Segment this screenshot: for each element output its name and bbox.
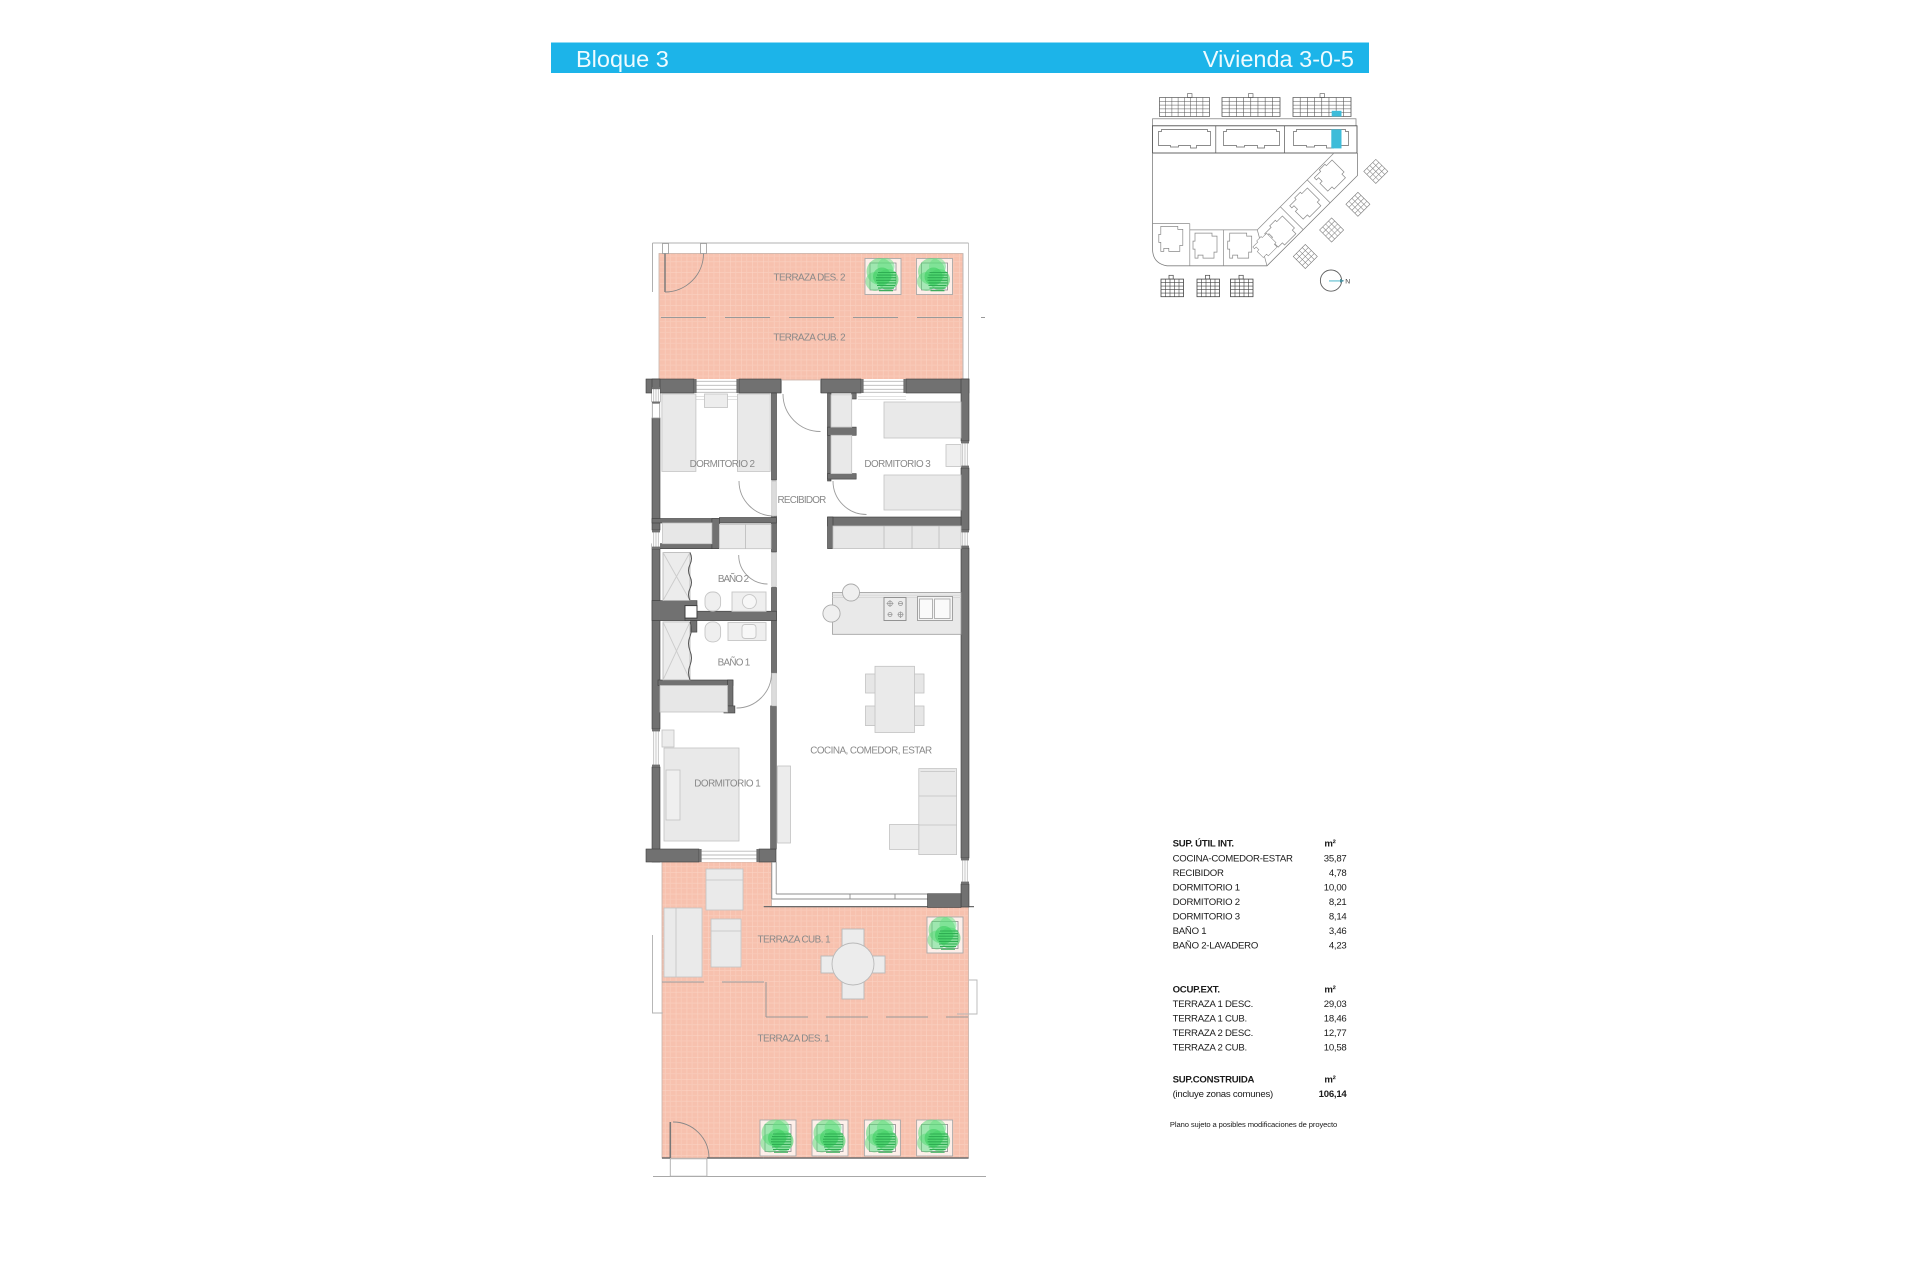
svg-text:COCINA, COMEDOR, ESTAR: COCINA, COMEDOR, ESTAR (810, 746, 932, 757)
svg-text:Bloque 3: Bloque 3 (576, 46, 669, 72)
svg-text:m²: m² (1324, 1075, 1335, 1086)
svg-text:4,23: 4,23 (1329, 941, 1347, 952)
svg-text:DORMITORIO 1: DORMITORIO 1 (694, 779, 761, 790)
svg-text:TERRAZA CUB. 2: TERRAZA CUB. 2 (773, 333, 845, 344)
svg-text:m²: m² (1324, 985, 1335, 996)
svg-text:8,14: 8,14 (1329, 912, 1348, 923)
svg-text:35,87: 35,87 (1324, 854, 1347, 865)
svg-text:18,46: 18,46 (1324, 1014, 1347, 1025)
svg-text:BAÑO 2-LAVADERO: BAÑO 2-LAVADERO (1173, 941, 1258, 952)
svg-text:Vivienda 3-0-5: Vivienda 3-0-5 (1203, 46, 1354, 72)
svg-text:TERRAZA CUB. 1: TERRAZA CUB. 1 (758, 935, 832, 946)
svg-text:COCINA-COMEDOR-ESTAR: COCINA-COMEDOR-ESTAR (1173, 854, 1293, 865)
svg-text:TERRAZA 2 CUB.: TERRAZA 2 CUB. (1173, 1043, 1247, 1054)
svg-text:106,14: 106,14 (1319, 1089, 1348, 1100)
svg-text:DORMITORIO 3: DORMITORIO 3 (864, 459, 931, 470)
svg-text:RECIBIDOR: RECIBIDOR (778, 495, 827, 506)
svg-text:TERRAZA 1 CUB.: TERRAZA 1 CUB. (1173, 1014, 1247, 1025)
svg-text:TERRAZA DES. 2: TERRAZA DES. 2 (774, 273, 846, 284)
svg-text:DORMITORIO 2: DORMITORIO 2 (1173, 897, 1240, 908)
svg-text:RECIBIDOR: RECIBIDOR (1173, 868, 1224, 879)
svg-text:BAÑO 1: BAÑO 1 (1173, 926, 1207, 937)
svg-text:(incluye zonas comunes): (incluye zonas comunes) (1173, 1089, 1273, 1100)
svg-text:OCUP.EXT.: OCUP.EXT. (1173, 985, 1220, 996)
svg-text:DORMITORIO 1: DORMITORIO 1 (1173, 883, 1240, 894)
svg-text:3,46: 3,46 (1329, 926, 1347, 937)
svg-text:SUP.CONSTRUIDA: SUP.CONSTRUIDA (1173, 1075, 1255, 1086)
svg-text:10,00: 10,00 (1324, 883, 1347, 894)
svg-text:8,21: 8,21 (1329, 897, 1347, 908)
svg-text:29,03: 29,03 (1324, 999, 1347, 1010)
svg-text:Plano sujeto a posibles modifi: Plano sujeto a posibles modificaciones d… (1170, 1120, 1337, 1129)
svg-text:N: N (1345, 278, 1350, 285)
svg-text:TERRAZA 1 DESC.: TERRAZA 1 DESC. (1173, 999, 1253, 1010)
svg-text:TERRAZA DES. 1: TERRAZA DES. 1 (758, 1034, 831, 1045)
svg-text:BAÑO 1: BAÑO 1 (718, 658, 751, 669)
svg-text:12,77: 12,77 (1324, 1028, 1347, 1039)
svg-text:m²: m² (1324, 839, 1335, 850)
svg-text:10,58: 10,58 (1324, 1043, 1347, 1054)
svg-text:TERRAZA 2 DESC.: TERRAZA 2 DESC. (1173, 1028, 1253, 1039)
svg-text:BAÑO 2: BAÑO 2 (718, 574, 749, 585)
svg-text:4,78: 4,78 (1329, 868, 1347, 879)
svg-text:DORMITORIO 2: DORMITORIO 2 (690, 459, 755, 470)
svg-text:SUP. ÚTIL INT.: SUP. ÚTIL INT. (1173, 838, 1234, 850)
svg-text:DORMITORIO 3: DORMITORIO 3 (1173, 912, 1240, 923)
